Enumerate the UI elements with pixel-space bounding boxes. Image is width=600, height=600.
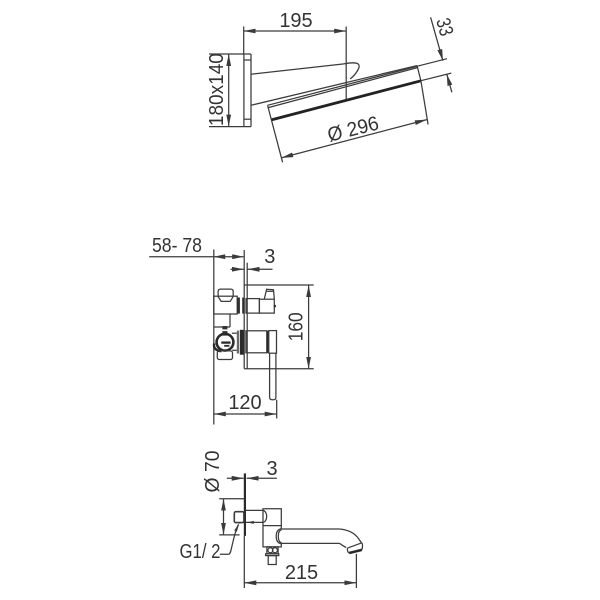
svg-text:58- 78: 58- 78 [152,235,202,257]
svg-text:3: 3 [264,246,275,268]
svg-text:215: 215 [285,562,318,584]
svg-text:Ø 70: Ø 70 [202,451,224,493]
svg-text:G1/ 2: G1/ 2 [180,541,221,563]
svg-text:120: 120 [228,392,261,414]
svg-text:195: 195 [279,10,312,32]
svg-text:180x140: 180x140 [206,53,228,126]
svg-text:3: 3 [266,458,277,480]
svg-text:160: 160 [286,312,308,341]
svg-text:Ø 296: Ø 296 [325,113,381,147]
svg-text:33: 33 [431,16,457,39]
